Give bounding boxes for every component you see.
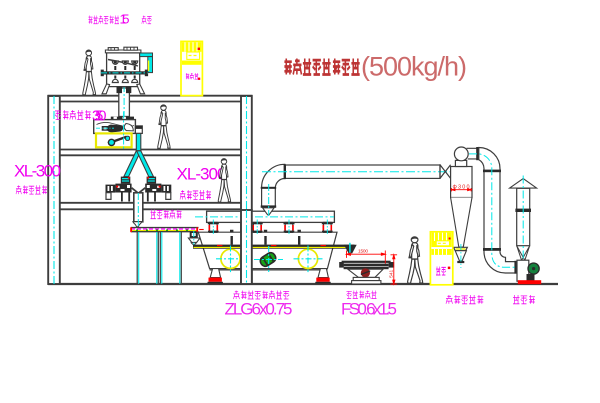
svg-text:XL-300: XL-300 <box>177 165 227 184</box>
svg-text:350: 350 <box>92 109 107 125</box>
svg-text:XL-300: XL-300 <box>14 162 61 181</box>
svg-text:Φ300: Φ300 <box>453 185 470 191</box>
svg-text:ZLG6x0.75: ZLG6x0.75 <box>225 300 293 319</box>
svg-text:1500: 1500 <box>358 249 368 255</box>
svg-text:1.5: 1.5 <box>120 12 130 27</box>
svg-text:FS0.6x1.5: FS0.6x1.5 <box>341 300 397 319</box>
svg-text:541: 541 <box>388 269 394 277</box>
svg-text:(500kg/h): (500kg/h) <box>361 52 467 82</box>
